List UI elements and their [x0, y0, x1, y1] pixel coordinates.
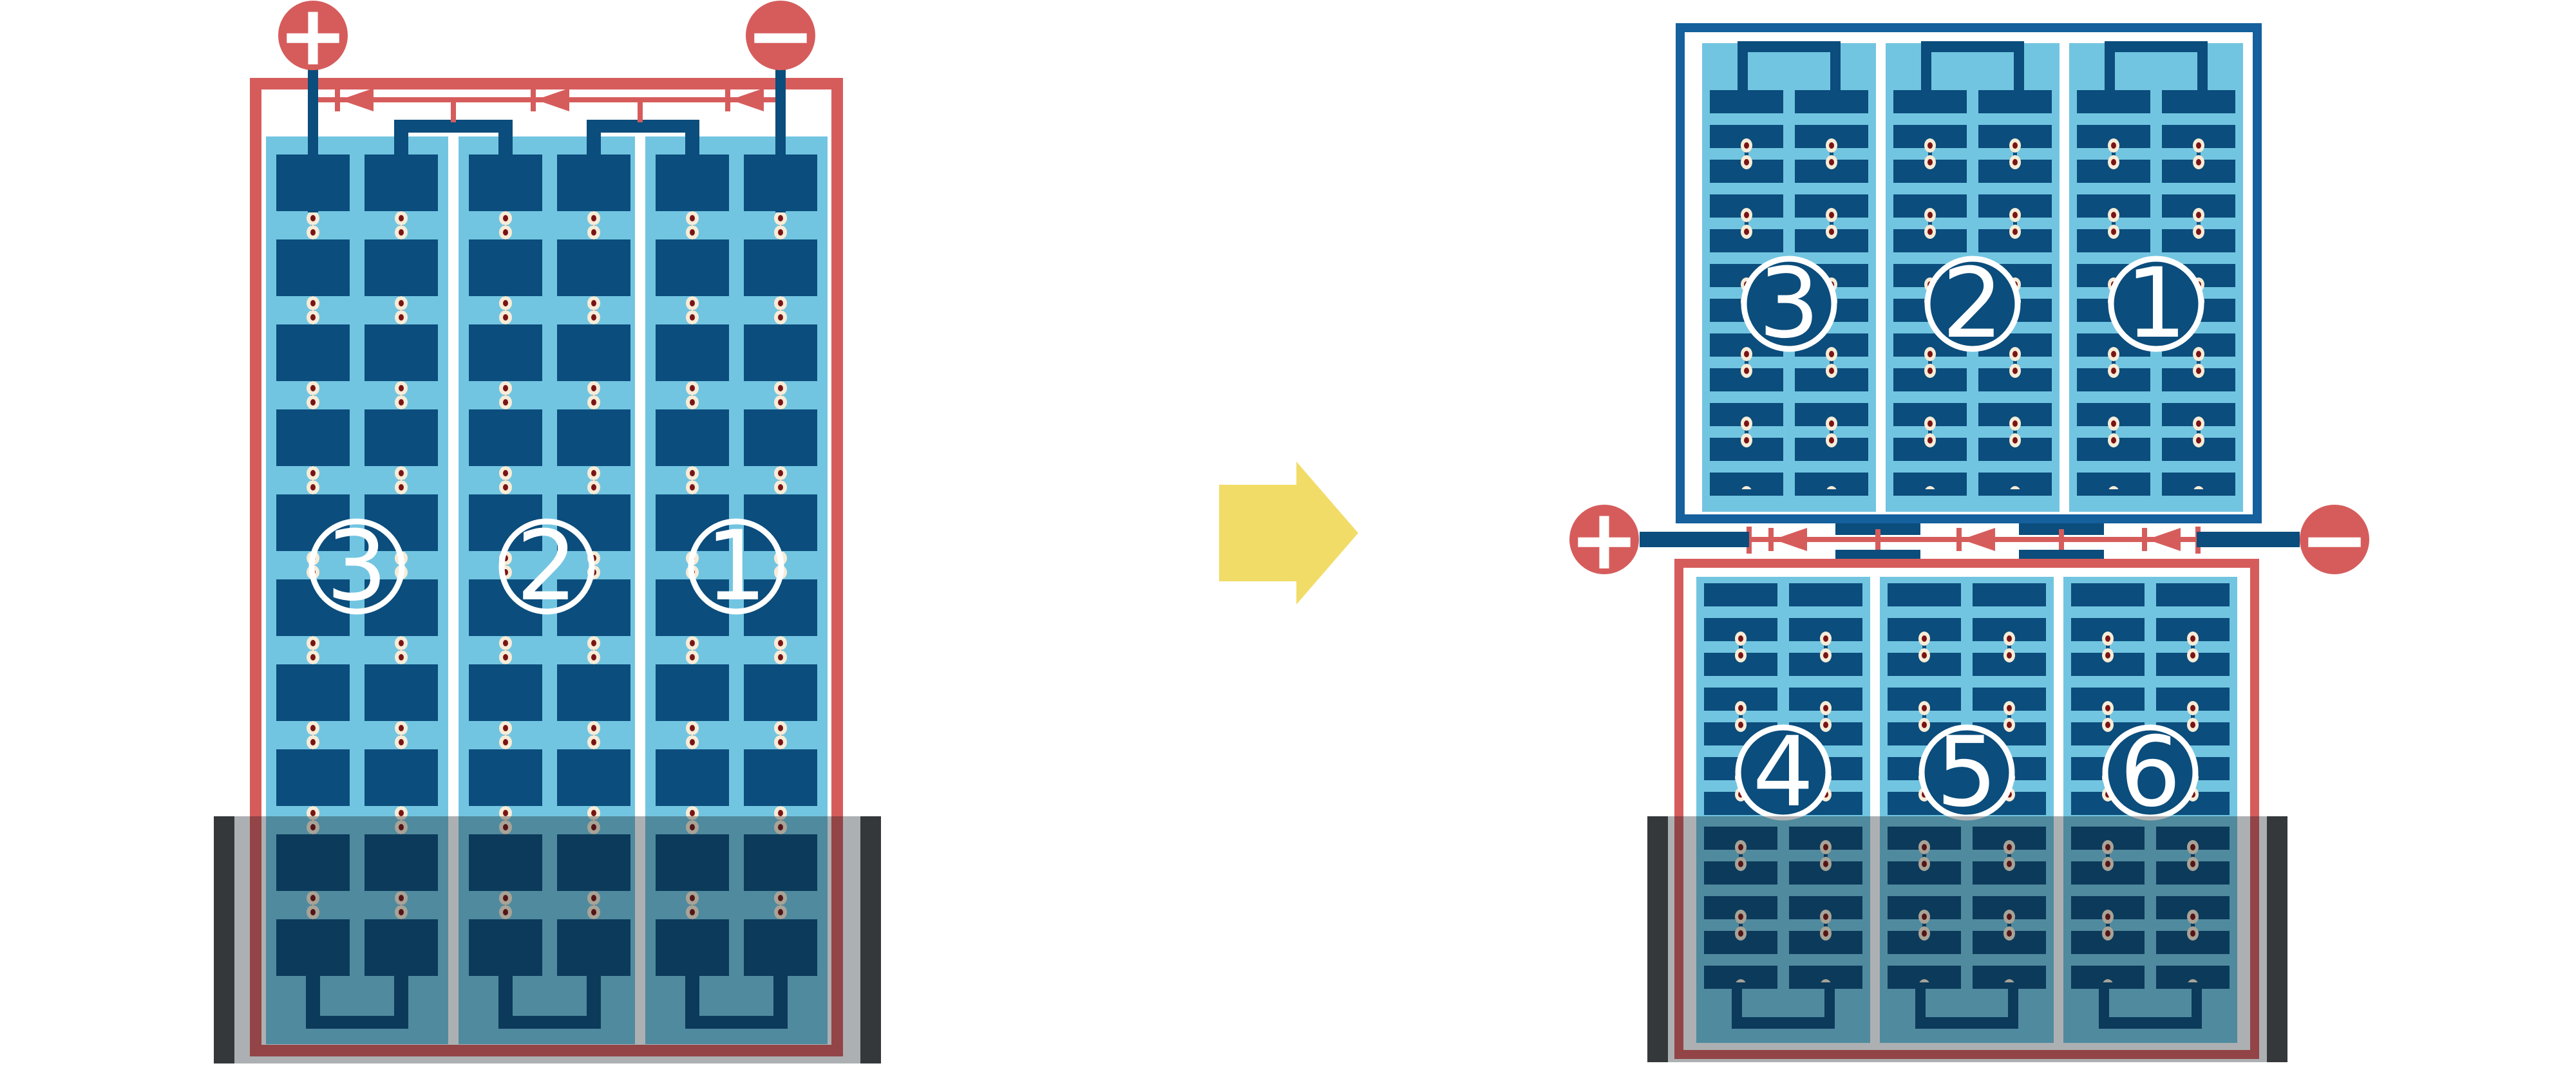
shade-overlay — [214, 816, 881, 1063]
string-number: 6 — [2119, 717, 2181, 829]
shade-region — [214, 816, 881, 1063]
bypass-diode-icon — [1768, 528, 1807, 551]
bypass-diode-bus — [313, 88, 781, 122]
terminal-stem — [775, 62, 786, 212]
terminal-symbol: + — [278, 0, 348, 84]
string-number: 4 — [1752, 717, 1814, 829]
column-separator — [2060, 43, 2069, 512]
terminal-stem — [2197, 532, 2300, 547]
right-bottom-module: 4 5 6 — [1647, 550, 2287, 1062]
bypass-diode-icon — [725, 88, 764, 111]
right-top-module: 3 2 1 — [1680, 28, 2257, 535]
left-module: + − 3 2 1 — [214, 0, 881, 1063]
string-number: 3 — [1758, 248, 1819, 360]
solar-module-diagram: + − 3 2 1 — [0, 0, 2576, 1068]
diode-tap — [451, 100, 456, 122]
shade-overlay — [1647, 816, 2287, 1062]
string-number: 2 — [1942, 248, 2003, 360]
negative-terminal-icon: − — [746, 0, 816, 84]
bypass-diode-icon — [531, 88, 569, 111]
string-number: 3 — [326, 511, 387, 623]
string-number: 5 — [1936, 717, 1997, 829]
bypass-diode-icon — [2142, 528, 2181, 551]
shade-region — [1647, 816, 2287, 1062]
terminal-symbol: − — [746, 0, 816, 84]
bypass-diode-icon — [335, 88, 374, 111]
string-number: 1 — [2125, 248, 2186, 360]
positive-terminal-icon: + — [278, 0, 348, 84]
terminal-stem — [308, 62, 318, 212]
column-separator — [1876, 43, 1886, 512]
string-number: 1 — [705, 511, 766, 623]
terminal-symbol: + — [1569, 491, 1640, 588]
terminal-stem — [1640, 532, 1749, 547]
positive-terminal-icon: + — [1569, 491, 1640, 588]
junction-tab — [2019, 550, 2104, 559]
bypass-diode-icon — [1956, 528, 1995, 551]
terminal-symbol: − — [2300, 491, 2370, 588]
string-number: 2 — [516, 511, 577, 623]
diode-tap — [638, 100, 643, 122]
figure-canvas: + − 3 2 1 — [0, 0, 2576, 1068]
transform-arrow-icon — [1219, 462, 1358, 604]
junction-tab — [1835, 550, 1920, 559]
negative-terminal-icon: − — [2300, 491, 2370, 588]
